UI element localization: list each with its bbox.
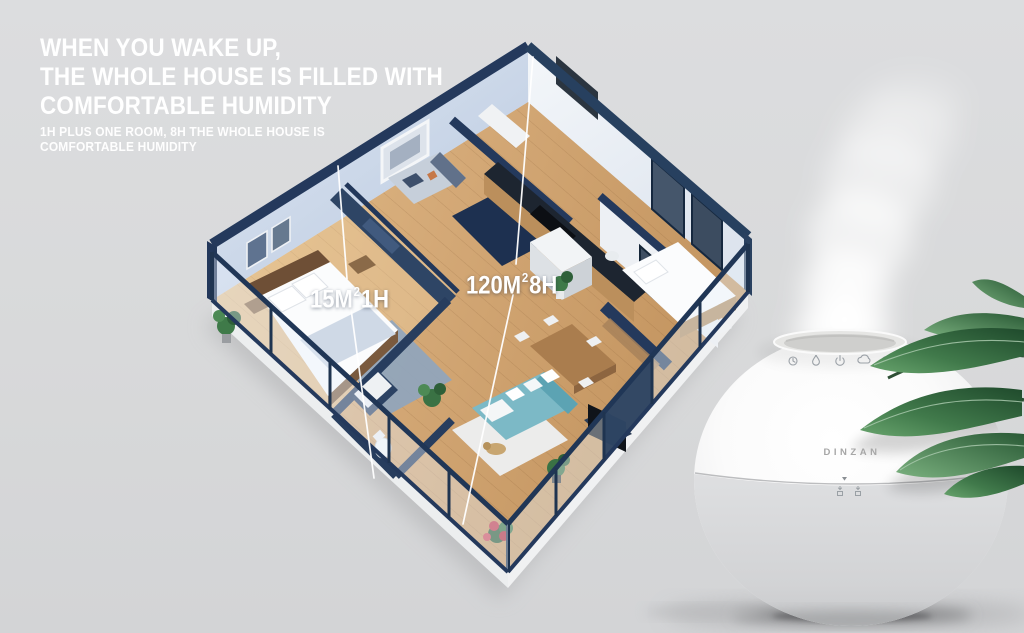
shadow-streak [645, 606, 765, 618]
headline-line3: COMFORTABLE HUMIDITY [40, 92, 443, 121]
house-coverage-label: 120M28H [466, 267, 557, 298]
room-coverage-label: 15M21H [310, 281, 389, 312]
headline: WHEN YOU WAKE UP, THE WHOLE HOUSE IS FIL… [40, 34, 443, 121]
headline-line2: THE WHOLE HOUSE IS FILLED WITH [40, 63, 443, 92]
brand-logo: DINZAN [798, 447, 906, 458]
coverage-time: 8H [529, 271, 557, 299]
coverage-time: 1H [361, 285, 389, 313]
mist-plume [794, 74, 964, 356]
kitchen-sink [605, 251, 619, 261]
coverage-area: 15M [310, 285, 353, 313]
plant-leaf [972, 279, 1024, 308]
headline-line1: WHEN YOU WAKE UP, [40, 34, 443, 63]
subheadline-line2: COMFORTABLE HUMIDITY [40, 140, 325, 155]
coverage-area-sup: 2 [354, 284, 360, 299]
coverage-area: 120M [466, 271, 521, 299]
subheadline: 1H PLUS ONE ROOM, 8H THE WHOLE HOUSE IS … [40, 125, 325, 154]
scene: WHEN YOU WAKE UP, THE WHOLE HOUSE IS FIL… [0, 0, 1024, 633]
dog-head [483, 442, 491, 450]
coverage-area-sup: 2 [522, 270, 528, 285]
subheadline-line1: 1H PLUS ONE ROOM, 8H THE WHOLE HOUSE IS [40, 125, 325, 140]
